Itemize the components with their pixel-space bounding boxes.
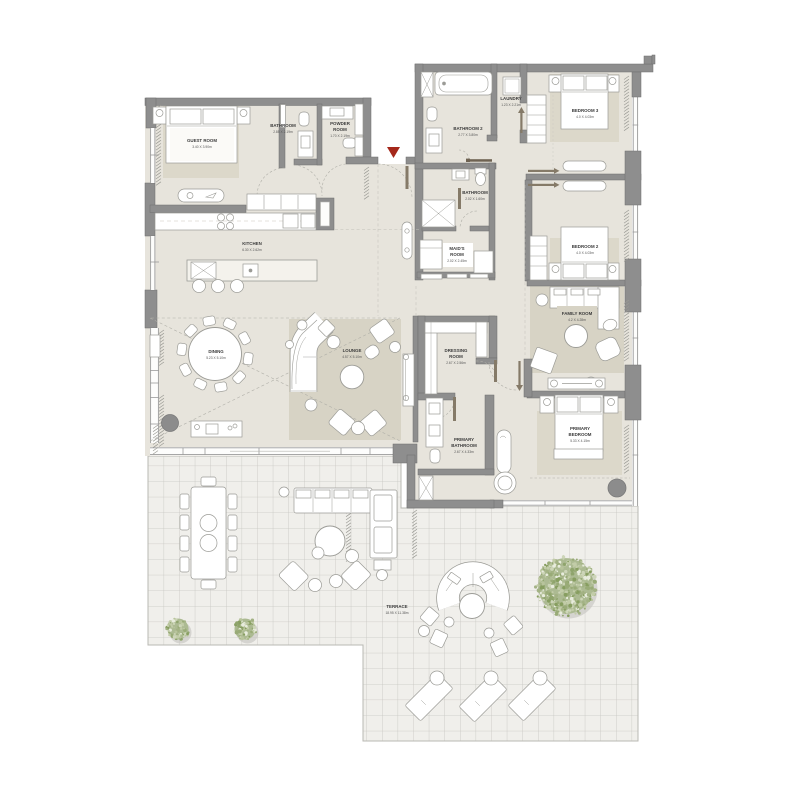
svg-text:4.57 X 5.10m: 4.57 X 5.10m xyxy=(342,355,362,359)
svg-text:PRIMARY: PRIMARY xyxy=(454,437,474,442)
svg-text:TERRACE: TERRACE xyxy=(386,604,407,609)
svg-text:2.85 X 2.19m: 2.85 X 2.19m xyxy=(273,130,293,134)
svg-text:PRIMARY: PRIMARY xyxy=(570,426,590,431)
svg-text:ROOM: ROOM xyxy=(449,354,463,359)
svg-text:1.70 X 2.19m: 1.70 X 2.19m xyxy=(330,134,350,138)
svg-text:POWDER: POWDER xyxy=(330,121,351,126)
svg-text:2.02 X 2.45m: 2.02 X 2.45m xyxy=(447,259,467,263)
svg-text:6.30 X 2.62m: 6.30 X 2.62m xyxy=(242,248,262,252)
svg-text:FAMILY ROOM: FAMILY ROOM xyxy=(562,311,593,316)
svg-text:5.23 X 5.10m: 5.23 X 5.10m xyxy=(206,356,226,360)
svg-text:2.67 X 4.33m: 2.67 X 4.33m xyxy=(454,450,474,454)
svg-text:18.95 X 11.38m: 18.95 X 11.38m xyxy=(385,611,408,615)
svg-text:2.02 X 1.60m: 2.02 X 1.60m xyxy=(465,197,485,201)
svg-text:3.40 X 3.90m: 3.40 X 3.90m xyxy=(192,145,212,149)
svg-text:4.2 X 4.28m: 4.2 X 4.28m xyxy=(568,318,586,322)
svg-text:ROOM: ROOM xyxy=(450,252,464,257)
svg-text:4.0 X 4.03m: 4.0 X 4.03m xyxy=(576,251,594,255)
svg-text:1.23 X 2.21m: 1.23 X 2.21m xyxy=(501,103,521,107)
svg-text:GUEST ROOM: GUEST ROOM xyxy=(187,138,217,143)
svg-text:DINING: DINING xyxy=(208,349,224,354)
svg-text:2.77 X 3.80m: 2.77 X 3.80m xyxy=(458,133,478,137)
svg-text:BATHROOM 2: BATHROOM 2 xyxy=(453,126,483,131)
svg-text:BATHROOM: BATHROOM xyxy=(462,190,488,195)
svg-text:ROOM: ROOM xyxy=(333,127,347,132)
svg-text:BEDROOM: BEDROOM xyxy=(569,432,592,437)
svg-text:BATHROOM: BATHROOM xyxy=(451,443,477,448)
svg-text:4.0 X 4.03m: 4.0 X 4.03m xyxy=(576,115,594,119)
svg-text:BEDROOM 3: BEDROOM 3 xyxy=(572,108,599,113)
svg-text:DRESSING: DRESSING xyxy=(445,348,469,353)
svg-text:LAUNDRY: LAUNDRY xyxy=(500,96,521,101)
svg-text:BATHROOM: BATHROOM xyxy=(270,123,296,128)
svg-text:KITCHEN: KITCHEN xyxy=(242,241,262,246)
svg-text:5.33 X 4.15m: 5.33 X 4.15m xyxy=(570,439,590,443)
svg-text:LOUNGE: LOUNGE xyxy=(343,348,362,353)
svg-text:BEDROOM 2: BEDROOM 2 xyxy=(572,244,599,249)
svg-text:MAID'S: MAID'S xyxy=(449,246,464,251)
svg-text:2.67 X 2.56m: 2.67 X 2.56m xyxy=(446,361,466,365)
